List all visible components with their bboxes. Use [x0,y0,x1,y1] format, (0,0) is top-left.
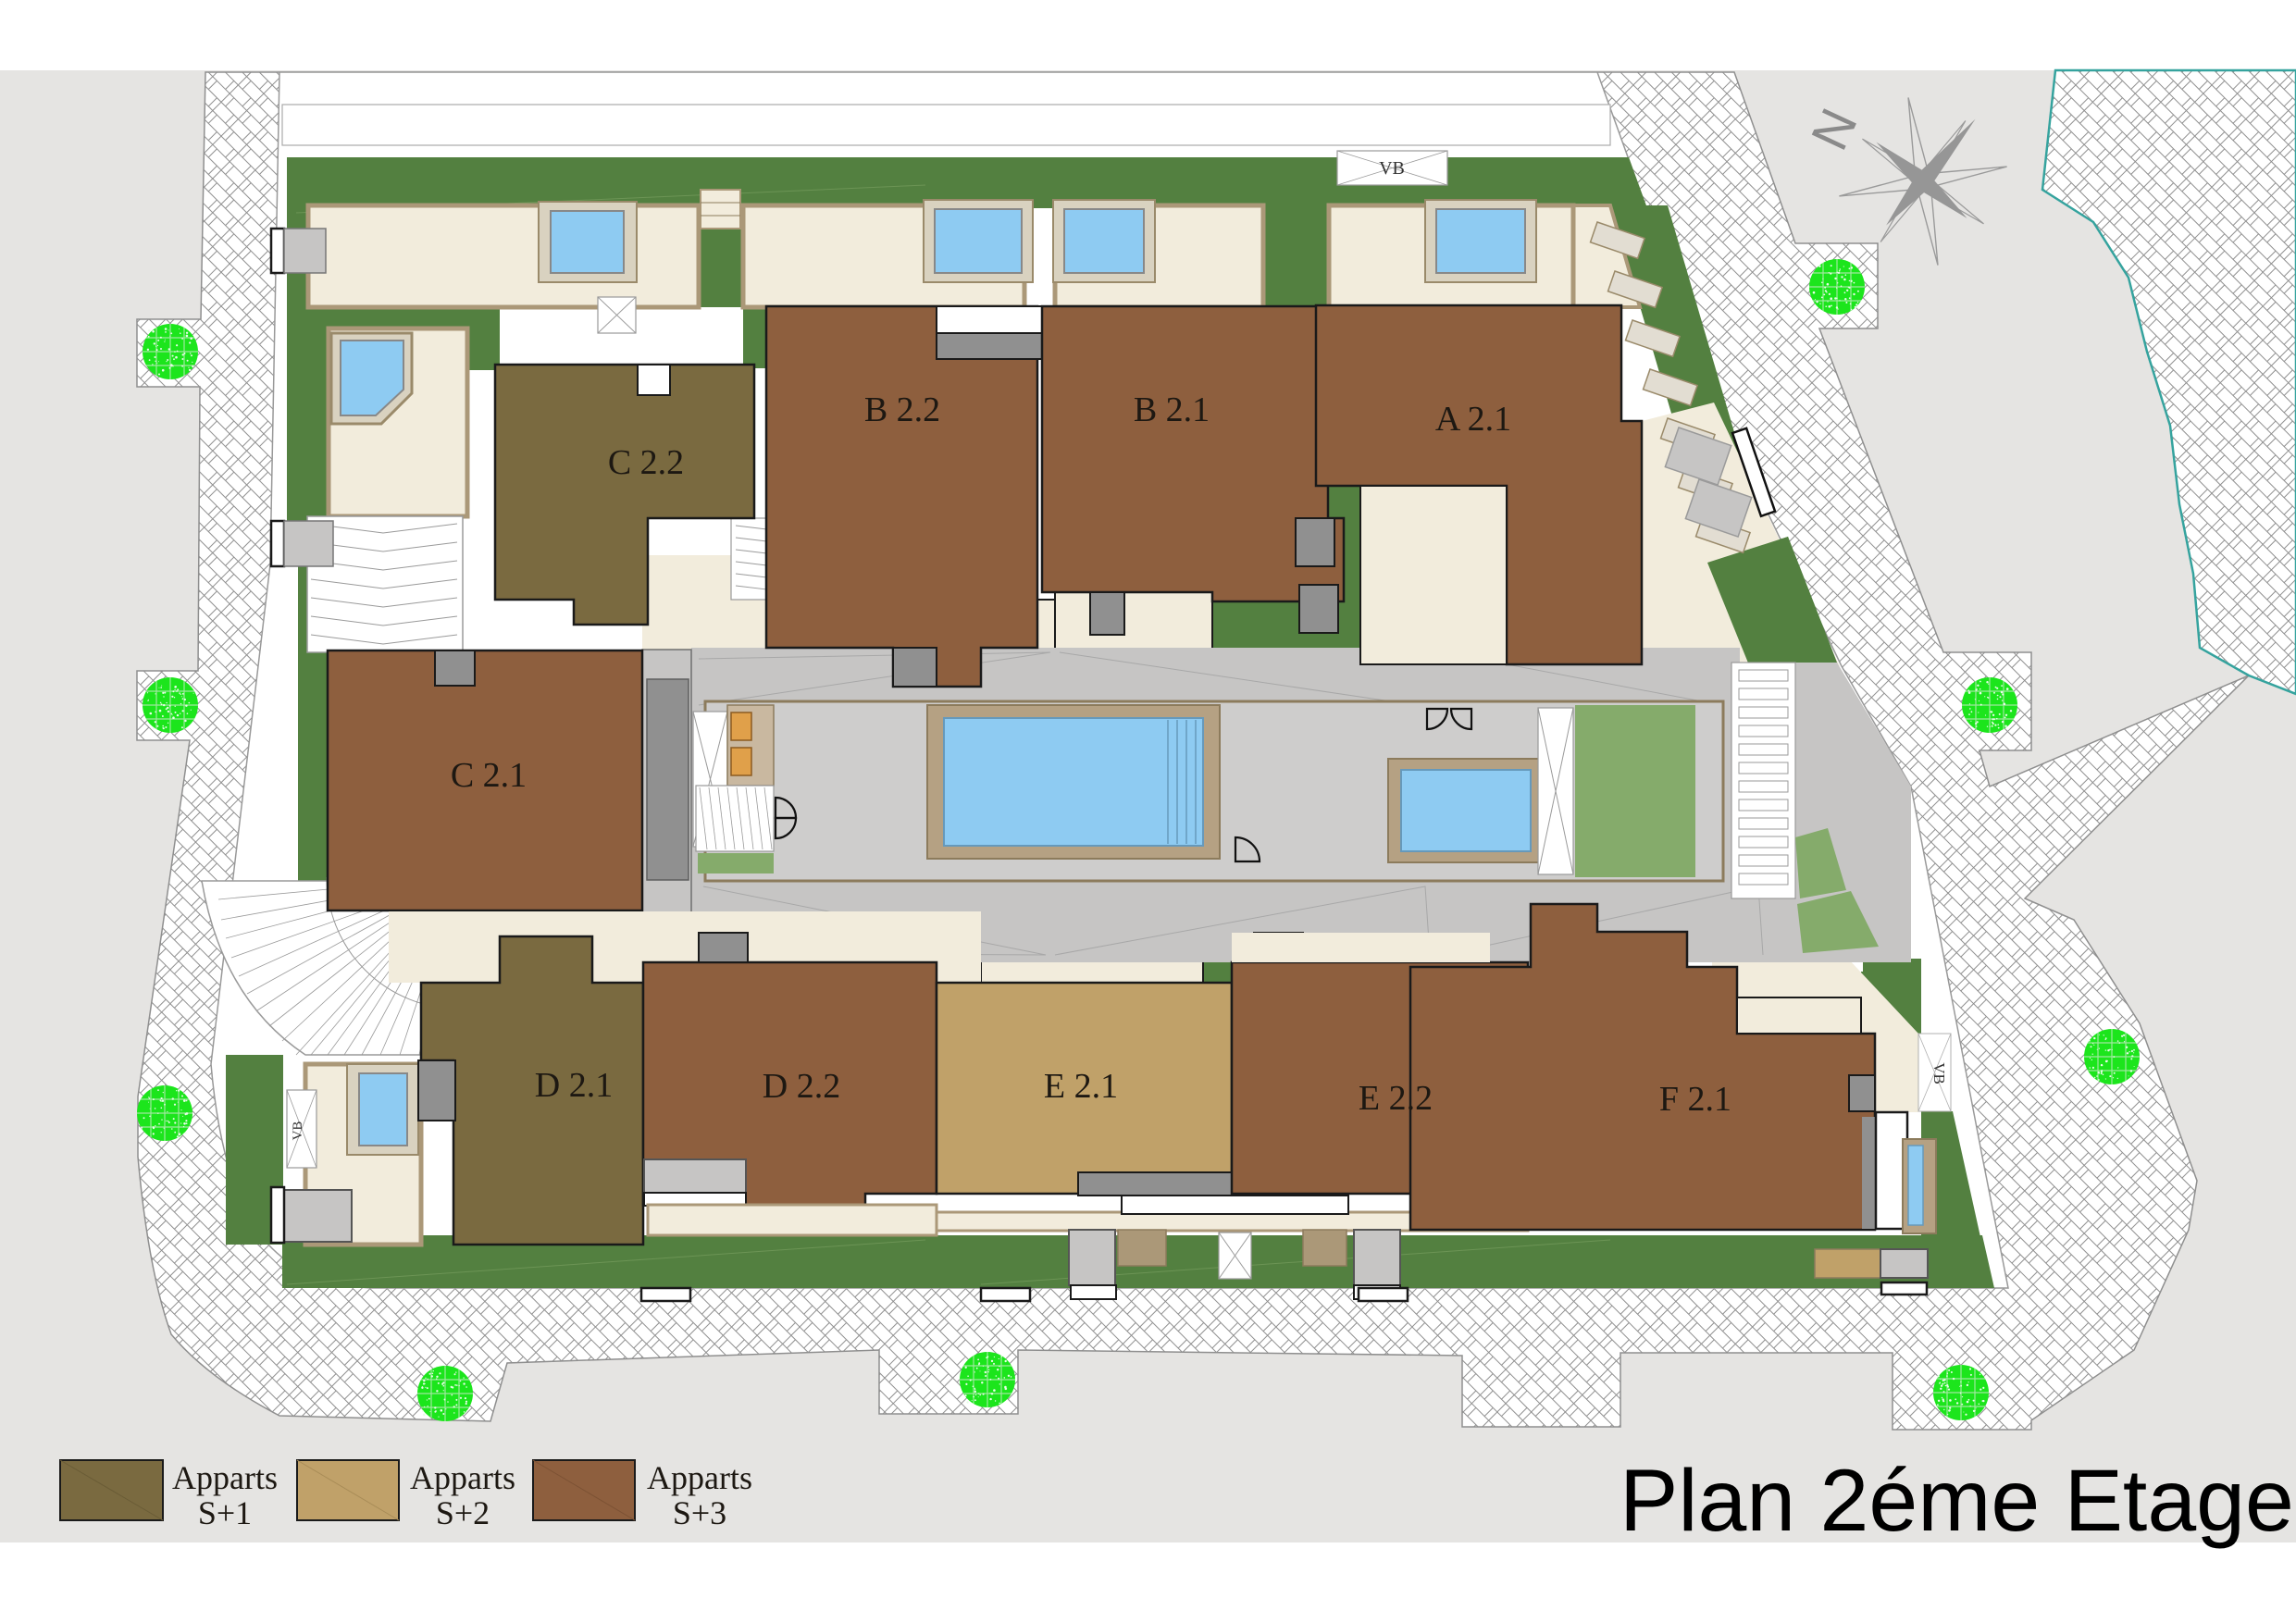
svg-text:A 2.1: A 2.1 [1435,400,1511,439]
svg-text:VB: VB [1930,1062,1948,1084]
svg-text:Apparts: Apparts [647,1459,752,1496]
svg-text:VB: VB [291,1121,305,1141]
svg-text:B 2.1: B 2.1 [1134,390,1210,429]
svg-text:E 2.1: E 2.1 [1044,1067,1118,1106]
svg-text:B 2.2: B 2.2 [864,390,940,429]
svg-text:F 2.1: F 2.1 [1659,1080,1731,1119]
svg-text:Plan 2éme Etage: Plan 2éme Etage [1620,1452,2294,1550]
svg-text:S+1: S+1 [198,1494,252,1531]
svg-text:Apparts: Apparts [410,1459,515,1496]
svg-text:C 2.2: C 2.2 [608,443,684,482]
svg-text:D 2.1: D 2.1 [535,1066,613,1105]
svg-text:S+3: S+3 [673,1494,726,1531]
svg-text:Apparts: Apparts [172,1459,278,1496]
svg-text:D 2.2: D 2.2 [763,1067,840,1106]
svg-text:C 2.1: C 2.1 [451,756,527,795]
svg-text:S+2: S+2 [436,1494,490,1531]
svg-text:VB: VB [1379,158,1405,179]
svg-text:E 2.2: E 2.2 [1359,1079,1433,1118]
